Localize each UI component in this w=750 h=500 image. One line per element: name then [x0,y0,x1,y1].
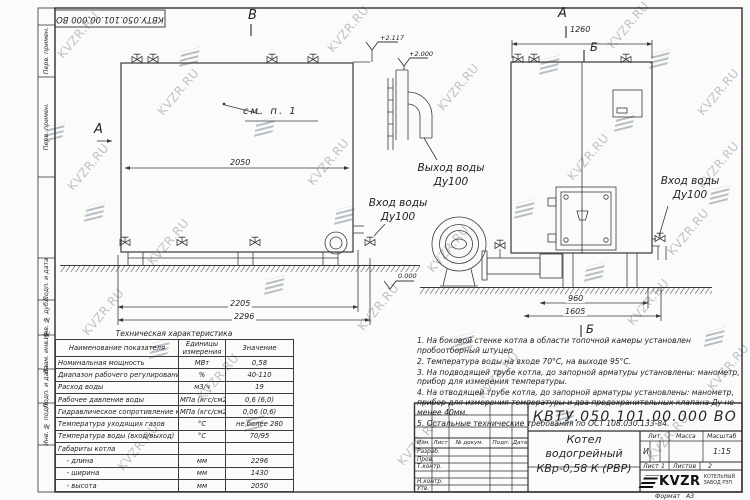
tech-cell-units: МВт [179,357,226,369]
tb-header-cell: Подп. [490,440,512,446]
mass-label: Масса [676,433,696,440]
tech-cell-name: Гидравлическое сопротивление котла [56,406,179,418]
product-name: Котел водогрейный КВр-0,58 К (РВР) [528,433,640,476]
margin-cell: Инв. № подл. [38,403,55,445]
tech-cell-value: 40-110 [226,369,294,381]
tech-cell-name: Диапазон рабочего регулирования [56,369,179,381]
section-label-b-bottom: Б [586,322,594,336]
dim-2296: 2296 [232,312,256,321]
table-row: - высотамм2050 [56,479,294,491]
margin-cell: Подп. и дата [38,369,55,403]
lit-label: Лит. [648,433,662,440]
tech-cell-name: Рабочее давление воды [56,393,179,405]
boiler-side-view [60,24,437,325]
format-stamp: Формат А3 [655,493,694,500]
outlet-water-dn: Ду100 [408,176,494,190]
scale-label: Масштаб [707,433,736,440]
tech-cell-name: Температура воды (вход/выход) [56,430,179,442]
tech-header-name: Наименование показателя [56,340,179,357]
tech-cell-value: не более 280 [226,418,294,430]
tech-header-units: Единицы измерения [179,340,226,357]
kvzr-logo-caption: КОТЕЛЬНЫЙ ЗАВОД РЭП [704,475,735,486]
outlet-water-label: Выход воды Ду100 [408,162,494,189]
tb-row-label: Пров. [417,457,434,463]
tech-cell-units: МПа (кгс/см2) [179,393,226,405]
elevation-zero: 0.000 [398,272,417,280]
tech-cell-units: мм [179,467,226,479]
dim-1605: 1605 [563,307,587,316]
tech-cell-name: - длина [56,455,179,467]
margin-cell: Взам. инв. № [38,335,55,369]
tb-row-label: Т.контр. [417,464,442,470]
tb-header-cell: Лист [432,440,449,446]
tech-cell-name: - ширина [56,467,179,479]
tech-cell-value: 0,06 (0,6) [226,406,294,418]
section-label-a-right: А [558,6,567,21]
product-name-line2: КВр-0,58 К (РВР) [528,462,640,476]
elevation-2117: +2.117 [380,34,404,42]
outlet-water-text: Выход воды [408,162,494,176]
tech-cell-value: 1430 [226,467,294,479]
sheet-label: Лист [643,463,659,470]
table-row: Температура уходящих газов°Сне более 280 [56,418,294,430]
tech-cell-value: 19 [226,381,294,393]
dim-2050: 2050 [228,158,252,167]
tech-cell-units: мм [179,455,226,467]
table-row: Гидравлическое сопротивление котлаМПа (к… [56,406,294,418]
dim-2205: 2205 [228,299,252,308]
table-row: Габариты котла [56,443,294,455]
inlet-water-label-left: Вход воды Ду100 [358,197,438,224]
table-row: Диапазон рабочего регулирования%40-110 [56,369,294,381]
lit-value: И [643,447,649,456]
drawing-sheet: KVZR.RUKVZR.RUKVZR.RUKVZR.RUKVZR.RUKVZR.… [0,0,750,500]
sheets-label: Листов [673,463,696,470]
table-row: - ширинамм1430 [56,467,294,479]
tech-cell-name: Номинальная мощность [56,357,179,369]
tech-table-title: Техническая характеристика [55,329,293,338]
kvzr-logo: KVZR КОТЕЛЬНЫЙ ЗАВОД РЭП [642,471,741,491]
table-row: Температура воды (вход/выход)°С70/95 [56,430,294,442]
margin-cell-label: Перв. примен. [43,103,50,150]
tech-cell-units: МПа (кгс/см2) [179,406,226,418]
tech-cell-name: Габариты котла [56,443,179,455]
kvzr-caption-line2: ЗАВОД РЭП [704,481,735,487]
dim-1260: 1260 [568,25,592,34]
tech-cell-units [179,443,226,455]
margin-cell-label: Инв. № подл. [43,402,50,446]
tb-row-label: Разраб. [417,449,440,455]
tech-cell-units: °С [179,418,226,430]
tb-row-label: Н.контр. [417,479,443,485]
note-item: 3. На подводящей трубе котла, до запорно… [417,368,744,388]
table-row: Рабочее давление водыМПа (кгс/см2)0,6 (6… [56,393,294,405]
tech-cell-value: 0,58 [226,357,294,369]
tech-table-header-row: Наименование показателя Единицы измерени… [56,340,294,357]
tb-row-label: Утв. [417,486,429,492]
inlet-water-label-right: Вход воды Ду100 [650,175,730,202]
margin-cell-label: Перв. примен. [43,27,50,74]
table-row: - длинамм2296 [56,455,294,467]
dim-960: 960 [566,294,585,303]
tech-cell-value: 2296 [226,455,294,467]
tech-cell-name: Температура уходящих газов [56,418,179,430]
margin-cell: Подп. и дата [38,258,55,300]
format-value: А3 [686,493,694,500]
sheet-value: 1 [661,463,665,470]
note-item: 1. На боковой стенке котла в области топ… [417,336,744,356]
margin-cell: Перв. примен. [38,25,55,77]
margin-cell-label: Подп. и дата [43,258,50,301]
scale-value: 1:15 [713,447,731,456]
kvzr-logo-icon [639,475,660,488]
tech-cell-units: °С [179,430,226,442]
see-note-label: см. п. 1 [243,106,298,117]
tech-header-value: Значение [226,340,294,357]
tech-cell-value: 2050 [226,479,294,491]
doc-number: КВТУ.050.101.00.000 ВО [528,403,742,431]
corner-stamp: КВТУ.050.101.00.000 ВО [55,10,165,27]
tech-cell-units: % [179,369,226,381]
inlet-water-dn-right: Ду100 [650,189,730,203]
sheets-value: 2 [708,463,712,470]
tb-header-cell: Изм. [415,440,432,446]
tech-cell-value [226,443,294,455]
table-row: Расход водым3/ч19 [56,381,294,393]
inlet-water-dn-left: Ду100 [358,211,438,225]
section-label-v: В [248,8,257,23]
table-row: Номинальная мощностьМВт0,58 [56,357,294,369]
tech-cell-name: Расход воды [56,381,179,393]
tech-cell-name: - высота [56,479,179,491]
tech-cell-units: м3/ч [179,381,226,393]
format-label: Формат [655,493,680,500]
section-label-b-top: Б [590,40,598,54]
kvzr-logo-text: KVZR [659,474,701,489]
inlet-water-text-right: Вход воды [650,175,730,189]
margin-cell: Перв. примен. [38,77,55,177]
inlet-water-text-left: Вход воды [358,197,438,211]
tech-cell-value: 0,6 (6,0) [226,393,294,405]
corner-stamp-text: КВТУ.050.101.00.000 ВО [56,14,164,24]
tech-table: Наименование показателя Единицы измерени… [55,339,294,492]
section-label-a-left: А [94,122,103,137]
tech-cell-units: мм [179,479,226,491]
elevation-2000: +2.000 [409,50,433,58]
tb-header-cell: Дата [512,440,528,446]
note-item: 2. Температура воды на входе 70°С, на вы… [417,357,744,367]
tb-header-cell: № докум. [449,440,490,446]
tech-cell-value: 70/95 [226,430,294,442]
product-name-line1: Котел водогрейный [528,433,640,462]
